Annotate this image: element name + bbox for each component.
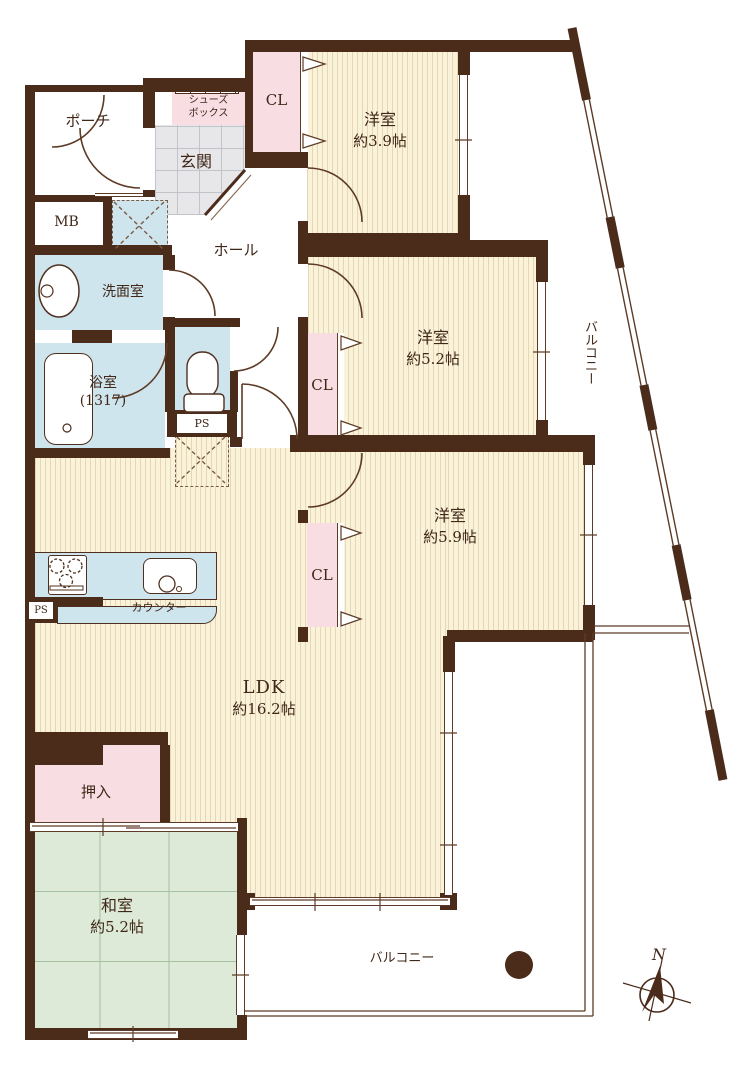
wall xyxy=(290,435,595,452)
floorplan: PS PS xyxy=(0,0,740,1073)
shoe-box-label: シューズボックス xyxy=(172,94,245,120)
meter-box-label: MB xyxy=(30,213,103,231)
pipe-space-2: PS xyxy=(29,602,53,619)
window-western-room-3 xyxy=(584,465,593,605)
wall xyxy=(143,190,155,197)
wall xyxy=(160,745,170,822)
wall xyxy=(230,371,238,412)
wall xyxy=(25,330,32,343)
porch-threshold xyxy=(95,193,143,197)
window-ldk-bottom xyxy=(250,897,450,906)
wall xyxy=(165,330,175,412)
hall-label: ホール xyxy=(194,241,278,261)
wall xyxy=(245,40,575,52)
window-japanese-room-bottom xyxy=(88,1030,178,1039)
wall xyxy=(298,233,460,257)
closet-2-label: CL xyxy=(300,376,344,396)
balcony-bottom-label: バルコニー xyxy=(348,951,456,968)
oshiire-label: 押入 xyxy=(56,783,136,803)
closet-1-label: CL xyxy=(253,91,300,111)
closet-3-label: CL xyxy=(300,566,344,586)
wall xyxy=(25,448,170,458)
porch-label: ポーチ xyxy=(46,112,130,132)
wall xyxy=(143,92,155,128)
western-room-2-label: 洋室約5.2帖 xyxy=(363,328,503,370)
wall xyxy=(443,636,455,672)
window-japanese-room-right xyxy=(236,935,245,1015)
western-room-3-label: 洋室約5.9帖 xyxy=(380,506,520,548)
wall xyxy=(447,630,593,642)
pipe-space-label: PS xyxy=(34,605,48,616)
wall xyxy=(72,330,112,343)
balcony-slant-railing xyxy=(584,99,712,710)
washroom-label: 洗面室 xyxy=(81,283,165,301)
wall xyxy=(458,40,470,75)
balcony-right-label: バルコニー xyxy=(571,306,597,398)
wall xyxy=(143,78,250,92)
compass-icon xyxy=(623,960,691,1021)
balcony-slant-walls xyxy=(572,28,723,780)
window-western-room-2 xyxy=(537,282,546,420)
wall xyxy=(536,420,548,452)
wall xyxy=(298,257,308,264)
bathroom-label: 浴室(1317) xyxy=(58,374,148,410)
wall xyxy=(25,732,103,765)
entrance-label: 玄関 xyxy=(156,152,236,173)
wall xyxy=(245,40,253,168)
wall xyxy=(25,245,172,255)
compass-north-label: N xyxy=(649,945,669,966)
sliding-door-japanese-room-top xyxy=(30,822,238,832)
western-room-1-label: 洋室約3.9帖 xyxy=(310,110,450,152)
wall xyxy=(28,85,145,92)
wall xyxy=(237,818,247,935)
pipe-space-1: PS xyxy=(177,414,227,433)
wall xyxy=(583,437,595,465)
counter-label: カウンター xyxy=(103,601,215,615)
window-western-room-1 xyxy=(459,75,468,195)
wall xyxy=(298,510,308,523)
wall xyxy=(245,152,308,168)
japanese-room-label: 和室約5.2帖 xyxy=(65,896,169,938)
wall xyxy=(298,221,308,237)
wall xyxy=(167,318,240,327)
stove-icon xyxy=(48,555,87,595)
wall xyxy=(458,195,470,240)
ldk-label: LDK約16.2帖 xyxy=(204,676,324,720)
ldk-void-box xyxy=(175,435,229,487)
wall xyxy=(536,240,548,282)
toilet-floor xyxy=(175,327,230,411)
wall xyxy=(455,240,545,257)
wall xyxy=(163,255,175,270)
wall xyxy=(230,437,242,447)
balcony-drain-icon xyxy=(505,951,533,979)
wall xyxy=(583,605,595,640)
wall xyxy=(103,732,168,745)
wall xyxy=(298,627,308,642)
pipe-space-label: PS xyxy=(195,417,210,430)
closet-1-door-strip xyxy=(300,50,308,152)
kitchen-sink-icon xyxy=(143,558,197,594)
window-ldk-right xyxy=(444,672,453,895)
